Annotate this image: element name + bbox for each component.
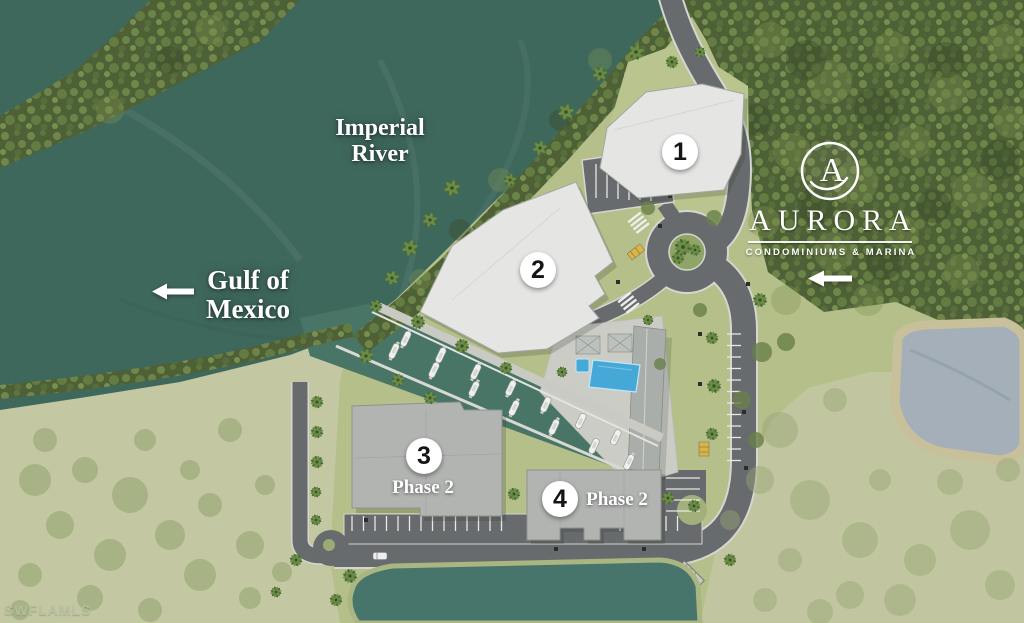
building-4-phase-label: Phase 2 xyxy=(547,489,687,511)
building-3-phase-label: Phase 2 xyxy=(353,477,493,499)
retention-pond-south xyxy=(350,560,700,623)
building-2-marker: 2 xyxy=(520,252,556,288)
building-3-marker: 3 xyxy=(406,438,442,474)
retention-pond-east xyxy=(895,322,1024,460)
site-plan-map: Imperial River Gulf of Mexico 1 2 3 4 Ph… xyxy=(0,0,1024,623)
gulf-line2: Mexico xyxy=(190,295,306,324)
building-2-number: 2 xyxy=(531,256,545,285)
imperial-river-line2: River xyxy=(302,142,458,168)
imperial-river-label: Imperial River xyxy=(302,116,458,168)
car xyxy=(373,553,387,560)
logo-divider xyxy=(748,241,912,243)
building-1-marker: 1 xyxy=(662,134,698,170)
watermark: SWFLAMLS xyxy=(4,602,91,618)
building-1-number: 1 xyxy=(673,138,687,167)
building-3-number: 3 xyxy=(417,442,431,471)
logo-brand-name: AURORA xyxy=(742,204,925,238)
left-arrow-icon xyxy=(152,283,194,300)
logo-monogram-icon: A xyxy=(799,140,861,202)
left-arrow-icon xyxy=(808,270,852,287)
logo-tagline: CONDOMINIUMS & MARINA xyxy=(742,247,920,258)
logo-monogram-badge: A xyxy=(742,140,918,202)
site-plan-illustration xyxy=(0,0,1024,623)
aurora-logo: A AURORA CONDOMINIUMS & MARINA xyxy=(742,140,918,292)
imperial-river-line1: Imperial xyxy=(302,116,458,142)
gulf-of-mexico-label: Gulf of Mexico xyxy=(190,266,306,324)
gulf-line1: Gulf of xyxy=(190,266,306,295)
